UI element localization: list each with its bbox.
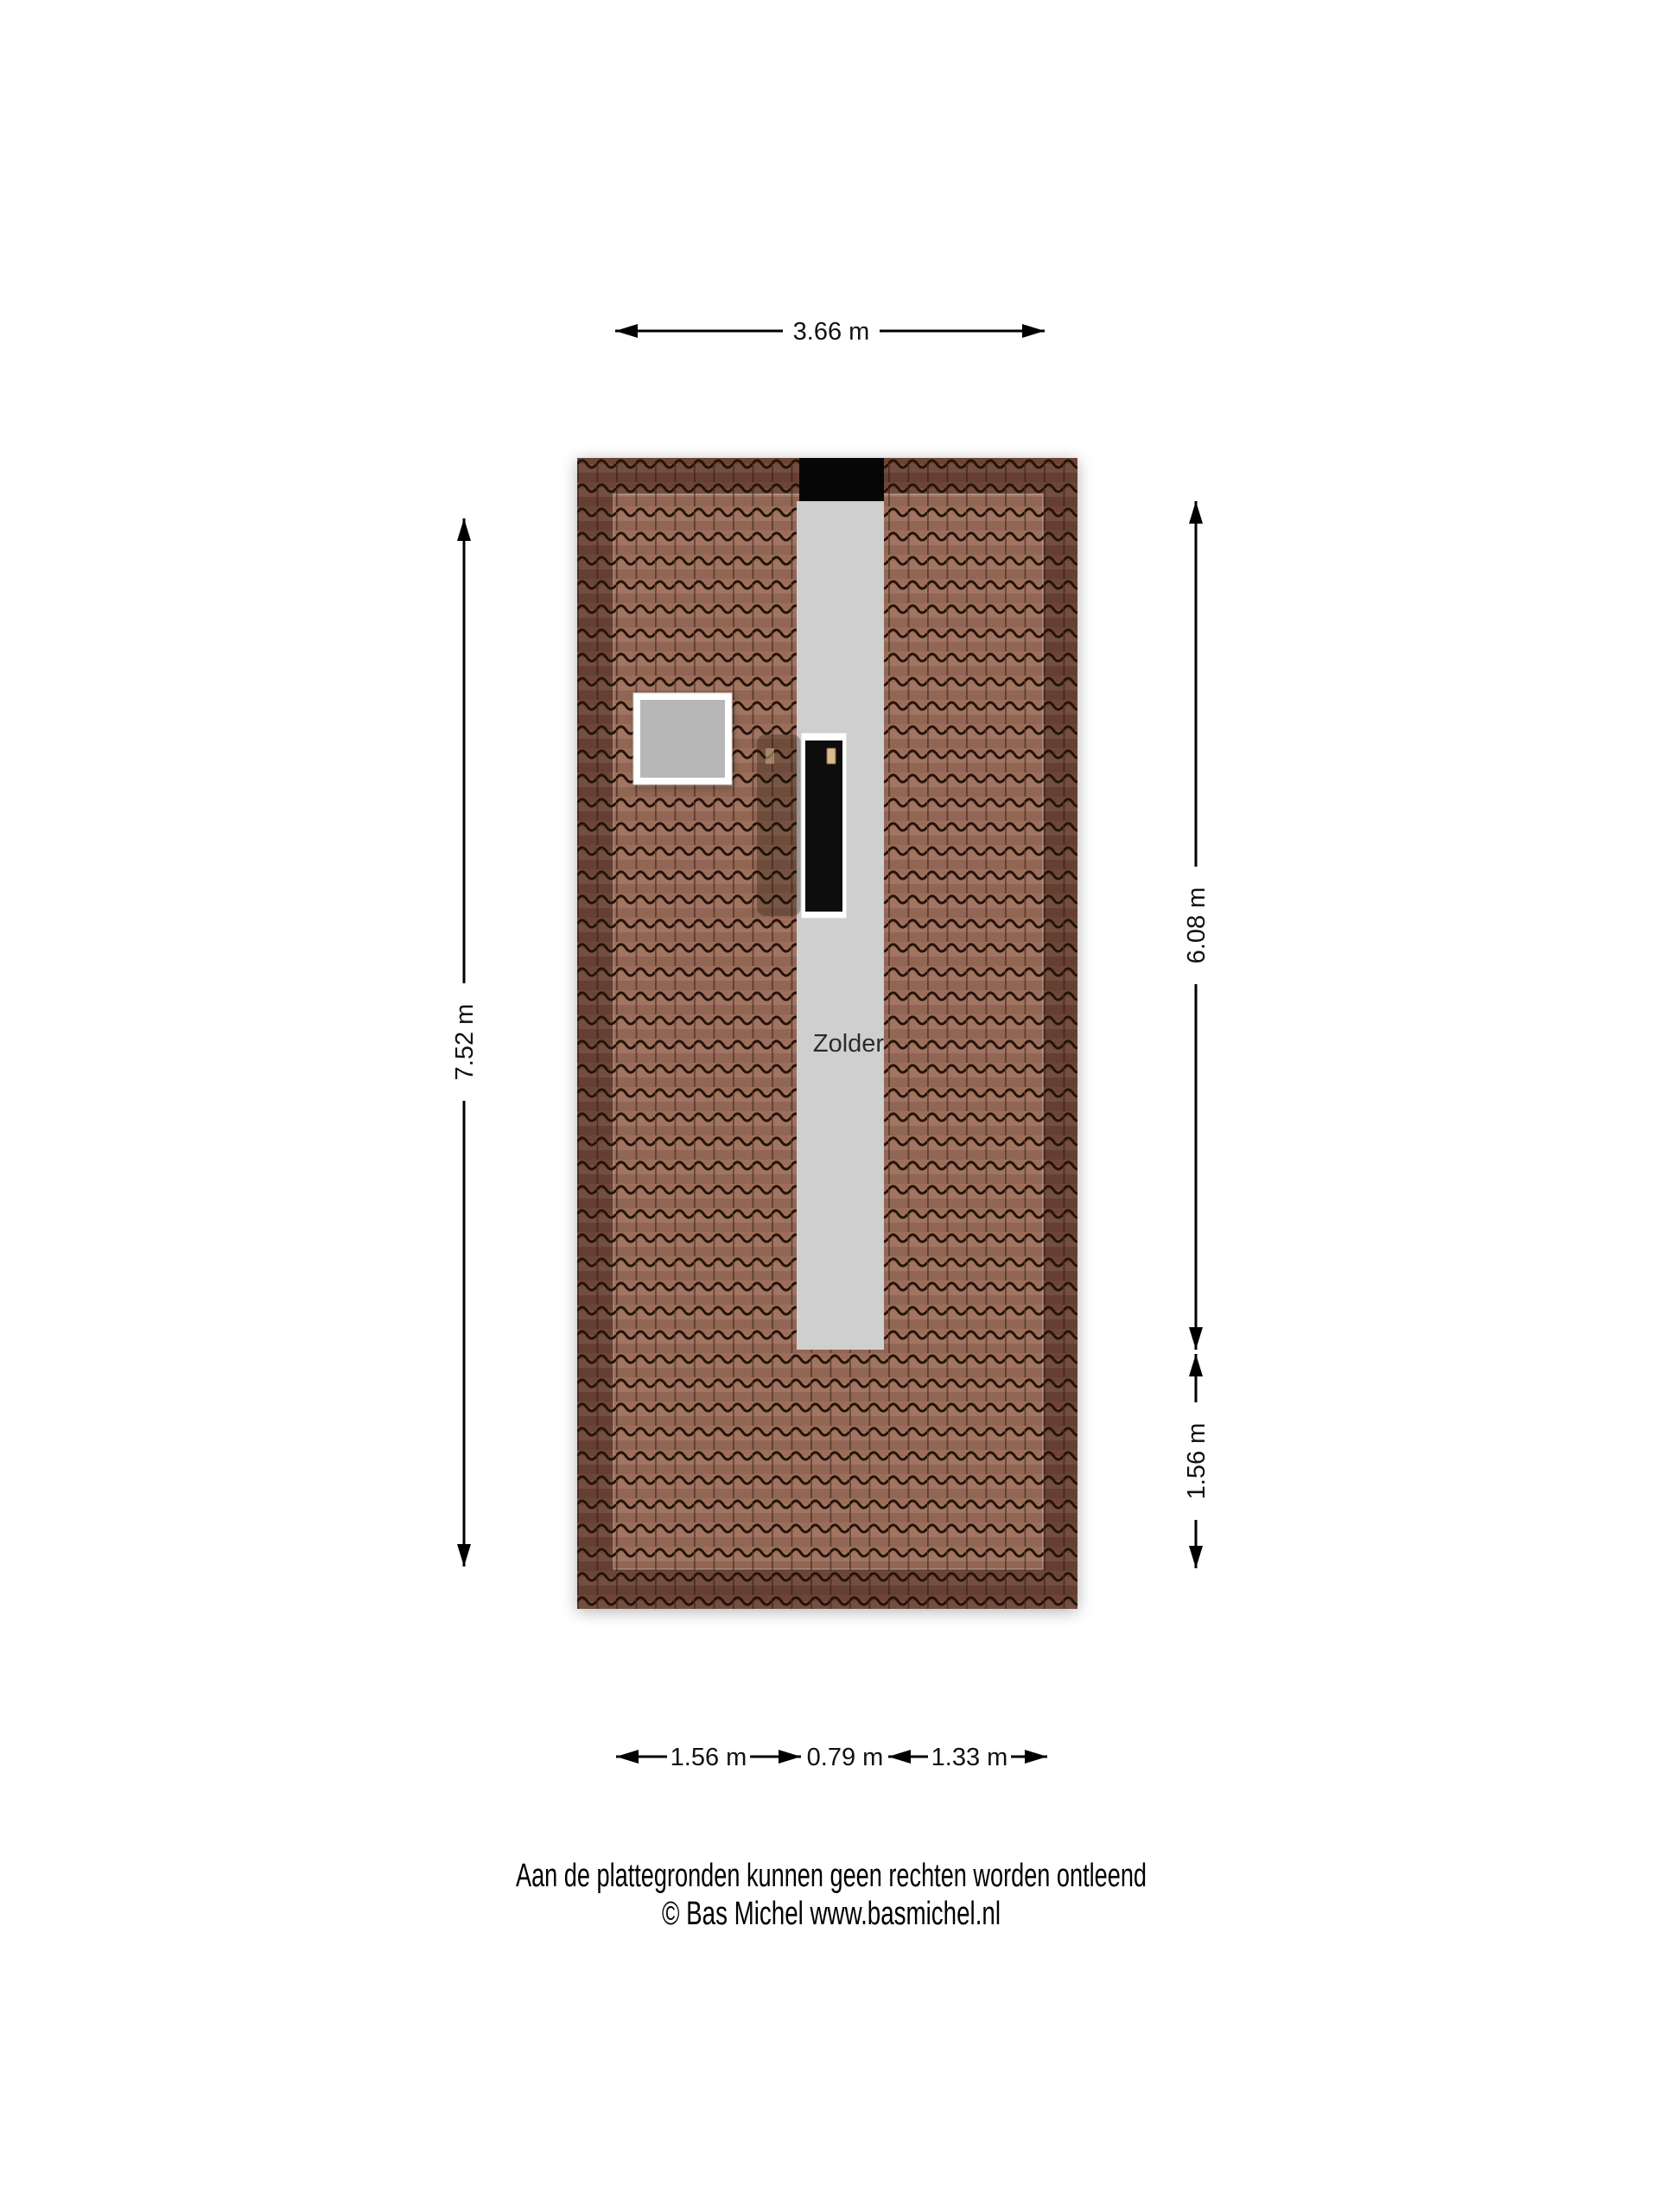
arrow-right-icon: [1025, 1750, 1047, 1764]
arrow-right-icon: [779, 1750, 801, 1764]
chimney: [799, 458, 884, 501]
footer-copyright: © Bas Michel www.basmichel.nl: [662, 1896, 1001, 1932]
arrow-up-icon: [457, 518, 471, 541]
arrow-right-icon: [1022, 324, 1045, 338]
arrow-left-icon: [616, 1750, 639, 1764]
ghost-handle: [766, 748, 774, 764]
skylight-glass: [640, 700, 725, 778]
stair-opening-overlay: [757, 734, 801, 916]
stair-door: [801, 733, 847, 918]
attic-floor-strip: [797, 501, 884, 1350]
arrow-up-icon: [1189, 1354, 1203, 1376]
door-handle-icon: [827, 748, 836, 764]
arrow-down-icon: [1189, 1327, 1203, 1350]
stair-door-panel: [805, 741, 842, 912]
arrow-down-icon: [1189, 1546, 1203, 1568]
room-label: Zolder: [813, 1030, 885, 1058]
dimension-label-bottom-right: 1.33 m: [931, 1744, 1008, 1771]
dimension-label-right-lower: 1.56 m: [1183, 1423, 1211, 1500]
dimension-label-bottom-middle: 0.79 m: [807, 1744, 884, 1771]
skylight: [633, 693, 732, 785]
arrow-down-icon: [457, 1544, 471, 1567]
dimension-label-bottom-left: 1.56 m: [671, 1744, 747, 1771]
floorplan-drawing: Zolder 3.66 m 7.52 m 6.08 m: [0, 0, 1659, 2212]
arrow-up-icon: [1189, 501, 1203, 524]
dimension-label-right-upper: 6.08 m: [1183, 887, 1211, 964]
floorplan-page: Zolder 3.66 m 7.52 m 6.08 m: [0, 0, 1659, 2212]
dimension-label-top: 3.66 m: [793, 318, 870, 346]
dimension-label-left: 7.52 m: [451, 1004, 479, 1081]
arrow-left-icon: [615, 324, 638, 338]
footer-disclaimer: Aan de plattegronden kunnen geen rechten…: [516, 1858, 1147, 1894]
arrow-left-icon: [888, 1750, 911, 1764]
